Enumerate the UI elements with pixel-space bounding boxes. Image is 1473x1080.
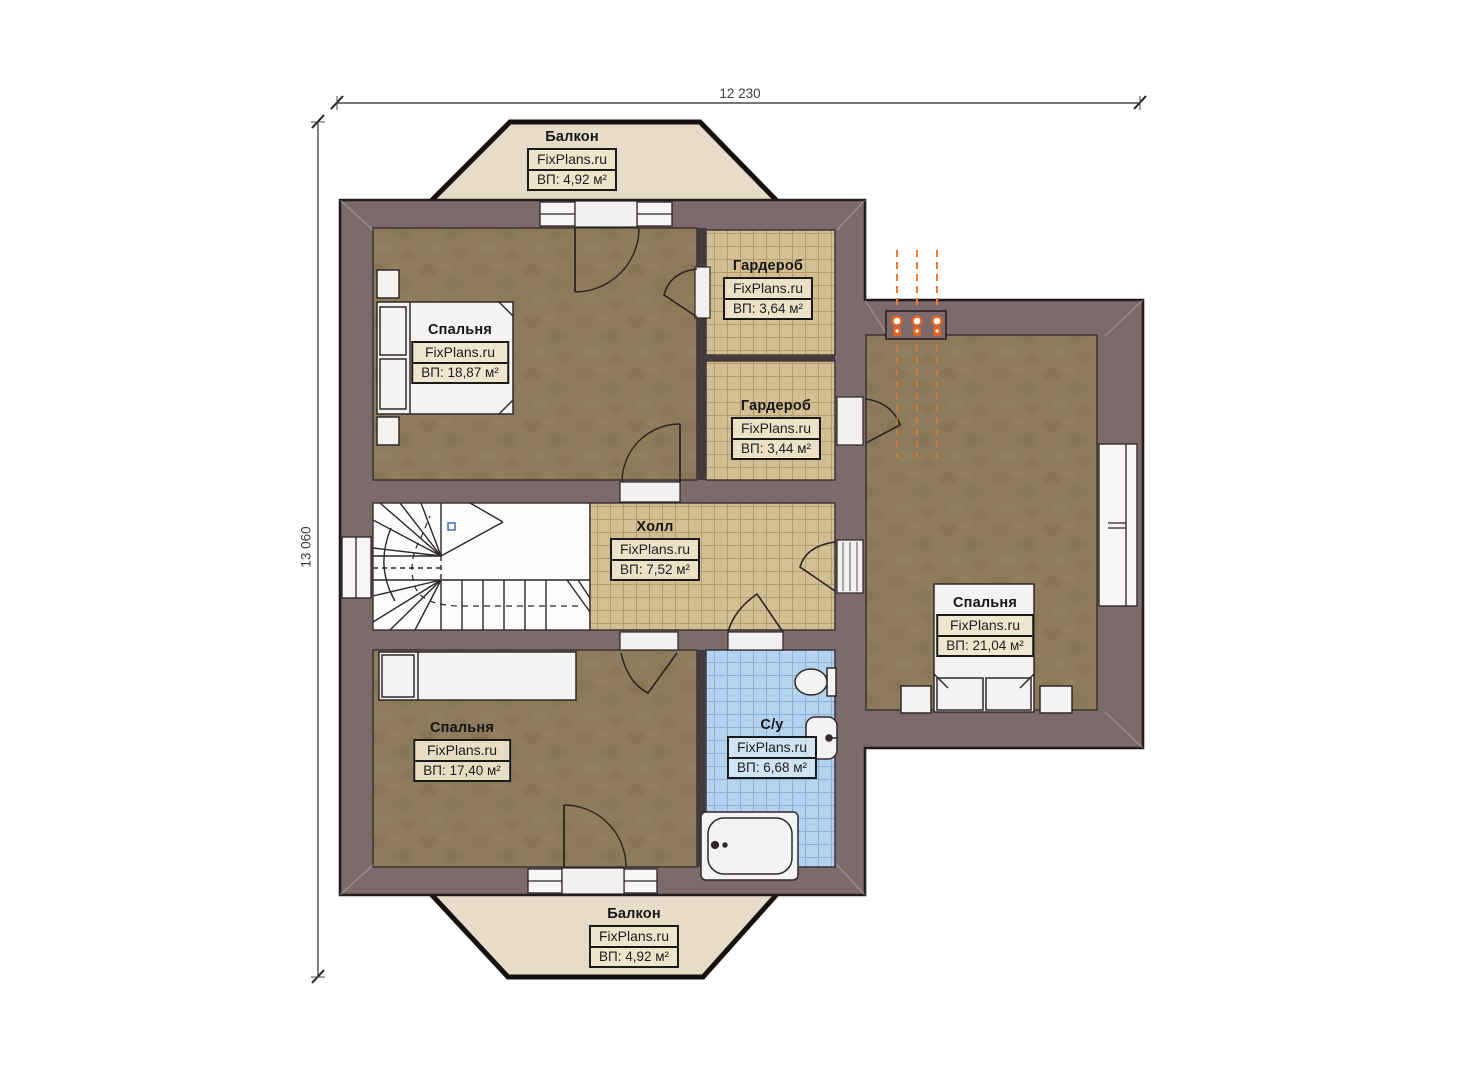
- room-label-bedroom-bottom-left: Спальня FixPlans.ru ВП: 17,40 м²: [413, 720, 511, 782]
- floor-stairwell: [373, 503, 590, 630]
- room-name: С/у: [727, 717, 817, 733]
- room-label-bathroom: С/у FixPlans.ru ВП: 6,68 м²: [727, 717, 817, 779]
- room-info-box: FixPlans.ru ВП: 6,68 м²: [727, 736, 817, 779]
- brand-watermark: FixPlans.ru: [612, 540, 698, 559]
- floor-plan-canvas: 12 230 13 060 Балкон FixPlans.ru ВП: 4,9…: [0, 0, 1473, 1080]
- brand-watermark: FixPlans.ru: [529, 150, 615, 169]
- room-name: Гардероб: [731, 398, 821, 414]
- room-area: ВП: 21,04 м²: [938, 635, 1032, 655]
- room-label-balcony-bottom: Балкон FixPlans.ru ВП: 4,92 м²: [589, 906, 679, 968]
- room-label-hall: Холл FixPlans.ru ВП: 7,52 м²: [610, 519, 700, 581]
- room-area: ВП: 4,92 м²: [591, 946, 677, 966]
- brand-watermark: FixPlans.ru: [591, 927, 677, 946]
- room-info-box: FixPlans.ru ВП: 3,64 м²: [723, 277, 813, 320]
- brand-watermark: FixPlans.ru: [733, 419, 819, 438]
- room-area: ВП: 18,87 м²: [413, 362, 507, 382]
- brand-watermark: FixPlans.ru: [725, 279, 811, 298]
- room-label-bedroom-right: Спальня FixPlans.ru ВП: 21,04 м²: [936, 595, 1034, 657]
- brand-watermark: FixPlans.ru: [729, 738, 815, 757]
- toilet: [795, 668, 836, 696]
- room-label-wardrobe-mid: Гардероб FixPlans.ru ВП: 3,44 м²: [731, 398, 821, 460]
- room-label-bedroom-top-left: Спальня FixPlans.ru ВП: 18,87 м²: [411, 322, 509, 384]
- window-top-right: [637, 202, 672, 226]
- room-name: Спальня: [411, 322, 509, 338]
- room-area: ВП: 17,40 м²: [415, 760, 509, 780]
- room-info-box: FixPlans.ru ВП: 4,92 м²: [527, 148, 617, 191]
- room-label-wardrobe-top: Гардероб FixPlans.ru ВП: 3,64 м²: [723, 258, 813, 320]
- room-info-box: FixPlans.ru ВП: 3,44 м²: [731, 417, 821, 460]
- window-top-left: [540, 202, 575, 226]
- room-name: Спальня: [936, 595, 1034, 611]
- room-name: Балкон: [589, 906, 679, 922]
- room-area: ВП: 3,64 м²: [725, 298, 811, 318]
- room-name: Балкон: [527, 129, 617, 145]
- dimension-width-label: 12 230: [719, 86, 760, 101]
- room-info-box: FixPlans.ru ВП: 21,04 м²: [936, 614, 1034, 657]
- room-area: ВП: 3,44 м²: [733, 438, 819, 458]
- floor-plan-svg: [0, 0, 1473, 1080]
- room-area: ВП: 6,68 м²: [729, 757, 815, 777]
- room-info-box: FixPlans.ru ВП: 7,52 м²: [610, 538, 700, 581]
- window-bottom-left: [528, 869, 562, 893]
- room-name: Холл: [610, 519, 700, 535]
- window-stairs-left: [342, 537, 371, 598]
- bathtub: [701, 812, 798, 880]
- room-info-box: FixPlans.ru ВП: 18,87 м²: [411, 341, 509, 384]
- room-info-box: FixPlans.ru ВП: 17,40 м²: [413, 739, 511, 782]
- brand-watermark: FixPlans.ru: [413, 343, 507, 362]
- brand-watermark: FixPlans.ru: [938, 616, 1032, 635]
- room-area: ВП: 7,52 м²: [612, 559, 698, 579]
- brand-watermark: FixPlans.ru: [415, 741, 509, 760]
- dimension-height-label: 13 060: [299, 526, 314, 567]
- room-label-balcony-top: Балкон FixPlans.ru ВП: 4,92 м²: [527, 129, 617, 191]
- bed-bedroom-bottom-left: [379, 652, 576, 700]
- room-info-box: FixPlans.ru ВП: 4,92 м²: [589, 925, 679, 968]
- room-area: ВП: 4,92 м²: [529, 169, 615, 189]
- room-name: Спальня: [413, 720, 511, 736]
- room-name: Гардероб: [723, 258, 813, 274]
- window-bottom-right: [624, 869, 657, 893]
- window-bedroom-right: [1099, 444, 1137, 606]
